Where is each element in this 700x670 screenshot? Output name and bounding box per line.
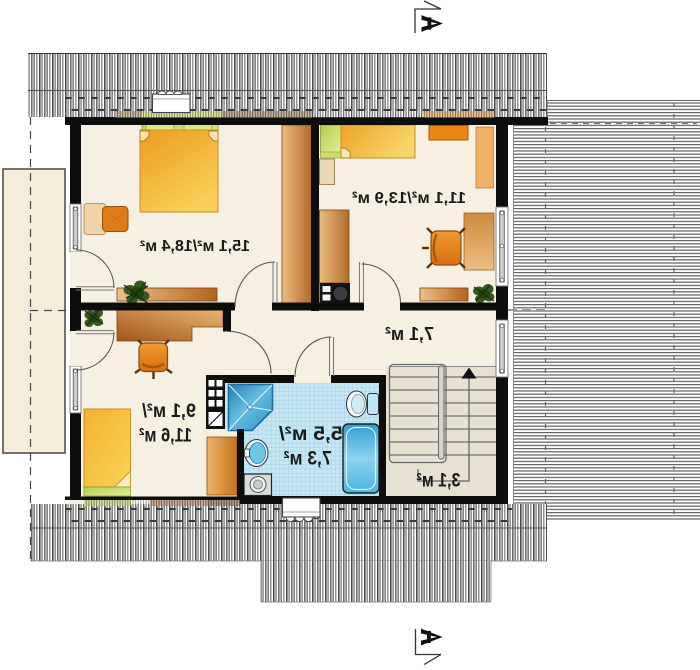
svg-text:11,6 м²: 11,6 м²: [139, 425, 192, 447]
svg-text:11,1 м²/13,9 м²: 11,1 м²/13,9 м²: [352, 190, 466, 207]
svg-text:5,5 м²/: 5,5 м²/: [278, 424, 343, 445]
svg-text:15,1 м²/18,4 м²: 15,1 м²/18,4 м²: [140, 238, 250, 255]
svg-text:3,1 м²: 3,1 м²: [417, 471, 461, 492]
svg-text:9,1 м²/: 9,1 м²/: [141, 400, 196, 422]
svg-text:7,3 м²: 7,3 м²: [284, 449, 332, 470]
svg-text:7,1 м²: 7,1 м²: [385, 323, 434, 344]
